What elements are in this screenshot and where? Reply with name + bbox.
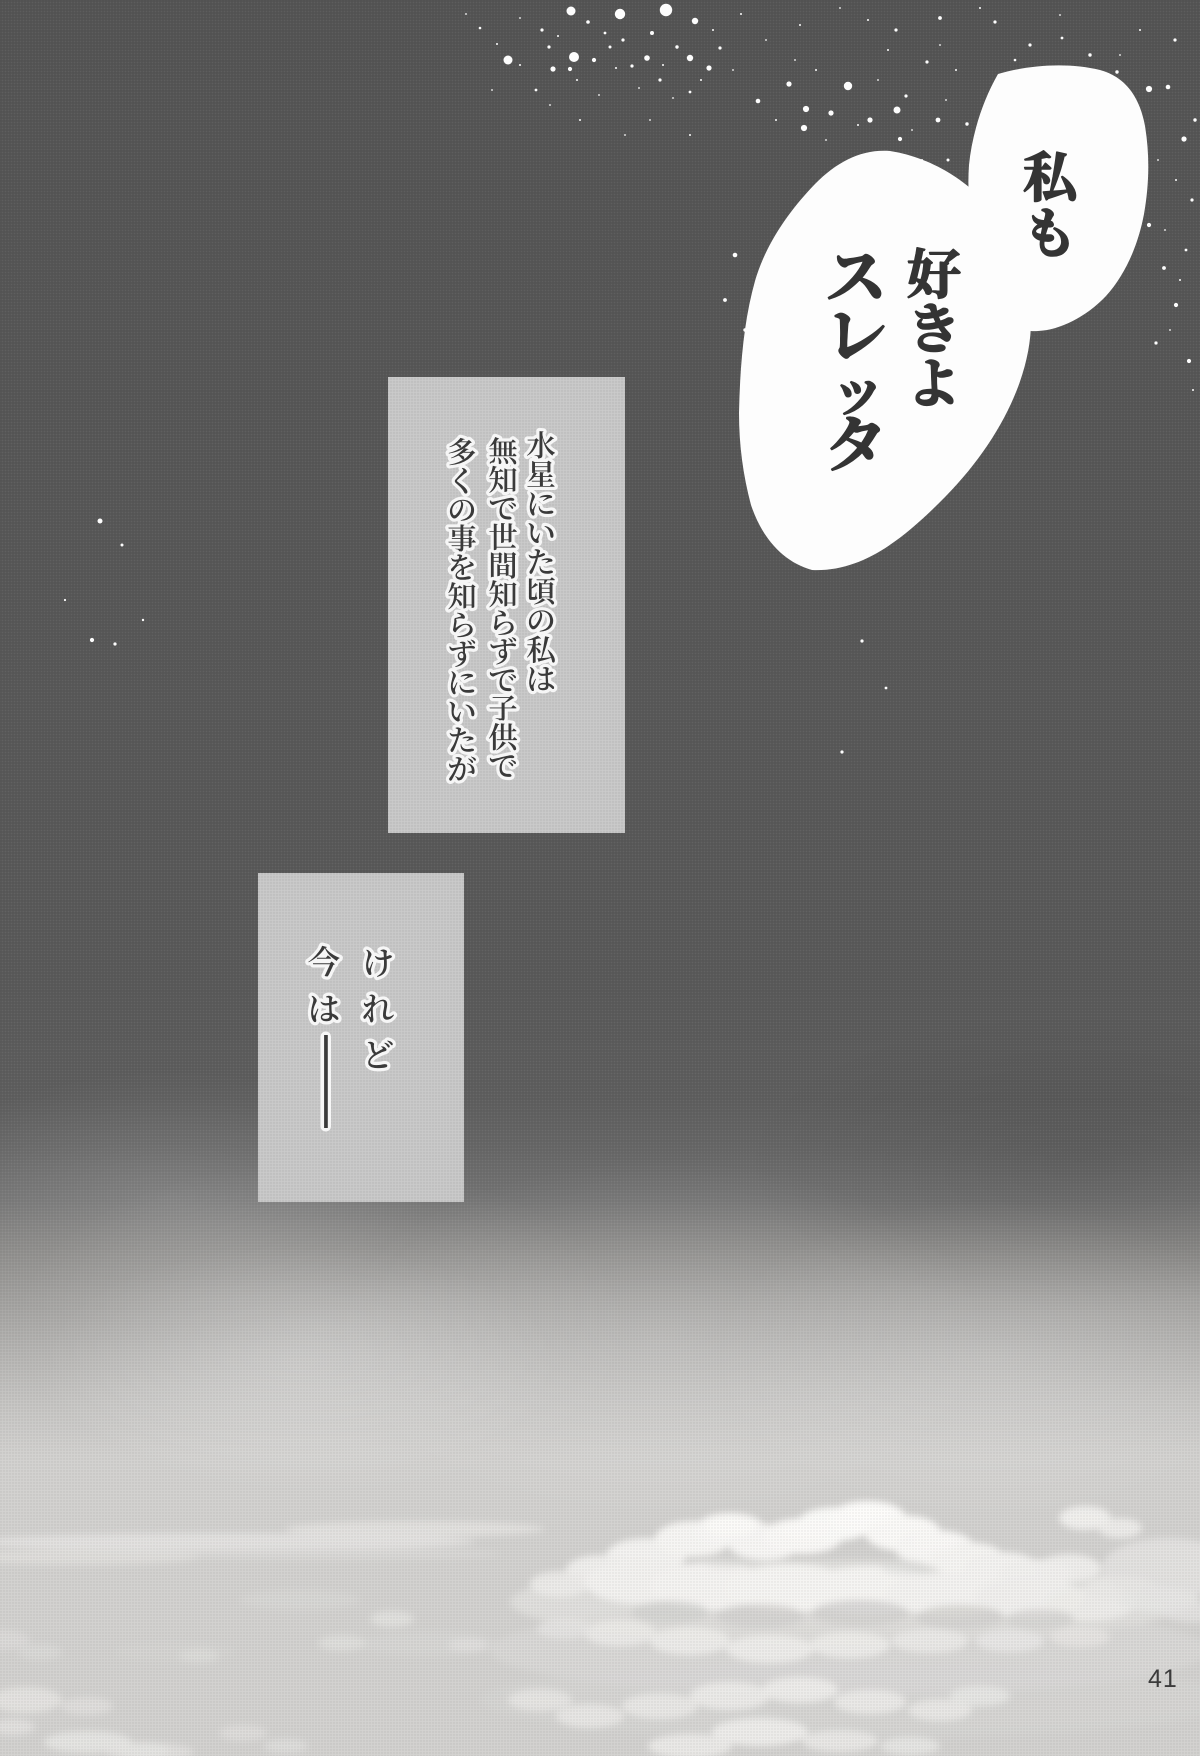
svg-text:41: 41 — [1148, 1665, 1178, 1693]
